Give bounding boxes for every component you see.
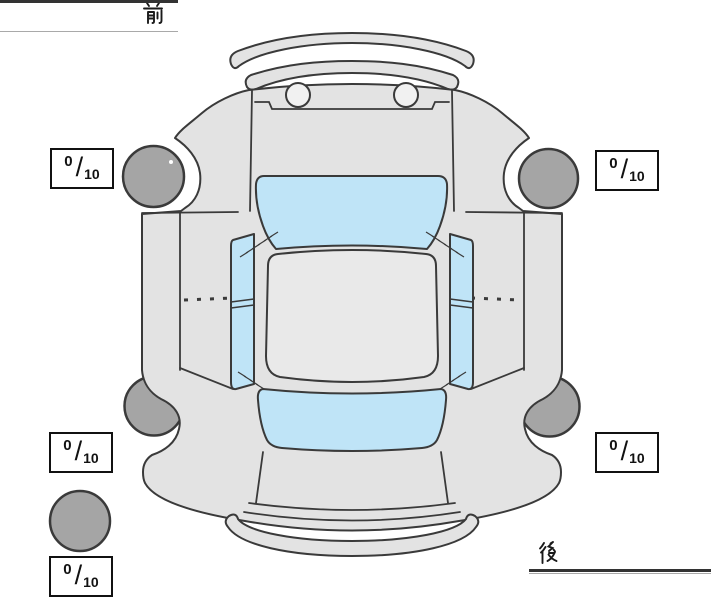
tread-score-spare: 0/10 bbox=[49, 556, 113, 597]
score-separator: / bbox=[621, 156, 629, 183]
rear-rule bbox=[529, 569, 711, 572]
rear-window bbox=[258, 389, 446, 451]
rear-kanji-glyph bbox=[540, 542, 557, 563]
score-value: 0 bbox=[609, 155, 617, 172]
score-max: 10 bbox=[83, 574, 99, 590]
tread-score-rear-left: 0/10 bbox=[49, 432, 113, 473]
score-separator: / bbox=[76, 154, 84, 181]
score-max: 10 bbox=[83, 450, 99, 466]
score-value: 0 bbox=[609, 437, 617, 454]
roof bbox=[266, 250, 438, 382]
washer-nozzle-left bbox=[286, 83, 310, 107]
side-window-left bbox=[231, 234, 254, 389]
washer-nozzle-right bbox=[394, 83, 418, 107]
sill-seam-left bbox=[142, 212, 238, 213]
wheel-front-right bbox=[519, 149, 578, 208]
rear-rule-shadow bbox=[529, 573, 711, 574]
score-separator: / bbox=[75, 438, 83, 465]
side-window-right bbox=[450, 234, 473, 389]
front-rule-shadow bbox=[0, 31, 178, 32]
score-value: 0 bbox=[63, 561, 71, 578]
wheel-highlight bbox=[169, 160, 173, 164]
score-max: 10 bbox=[84, 166, 100, 182]
tread-score-front-left: 0/10 bbox=[50, 148, 114, 189]
spare-tire bbox=[50, 491, 110, 551]
windshield bbox=[256, 176, 447, 249]
front-rule bbox=[0, 0, 178, 3]
front-kanji-glyph bbox=[144, 3, 162, 23]
score-value: 0 bbox=[63, 437, 71, 454]
score-max: 10 bbox=[629, 168, 645, 184]
score-max: 10 bbox=[629, 450, 645, 466]
wheel-front-left bbox=[123, 146, 184, 207]
tread-score-front-right: 0/10 bbox=[595, 150, 659, 191]
score-separator: / bbox=[75, 562, 83, 589]
score-value: 0 bbox=[64, 153, 72, 170]
car-top-view bbox=[0, 0, 711, 600]
sill-seam-right bbox=[466, 212, 562, 213]
tread-score-rear-right: 0/10 bbox=[595, 432, 659, 473]
car-condition-diagram: 前 後 0/10 0/10 0/10 0/10 0/10 bbox=[0, 0, 711, 600]
score-separator: / bbox=[621, 438, 629, 465]
